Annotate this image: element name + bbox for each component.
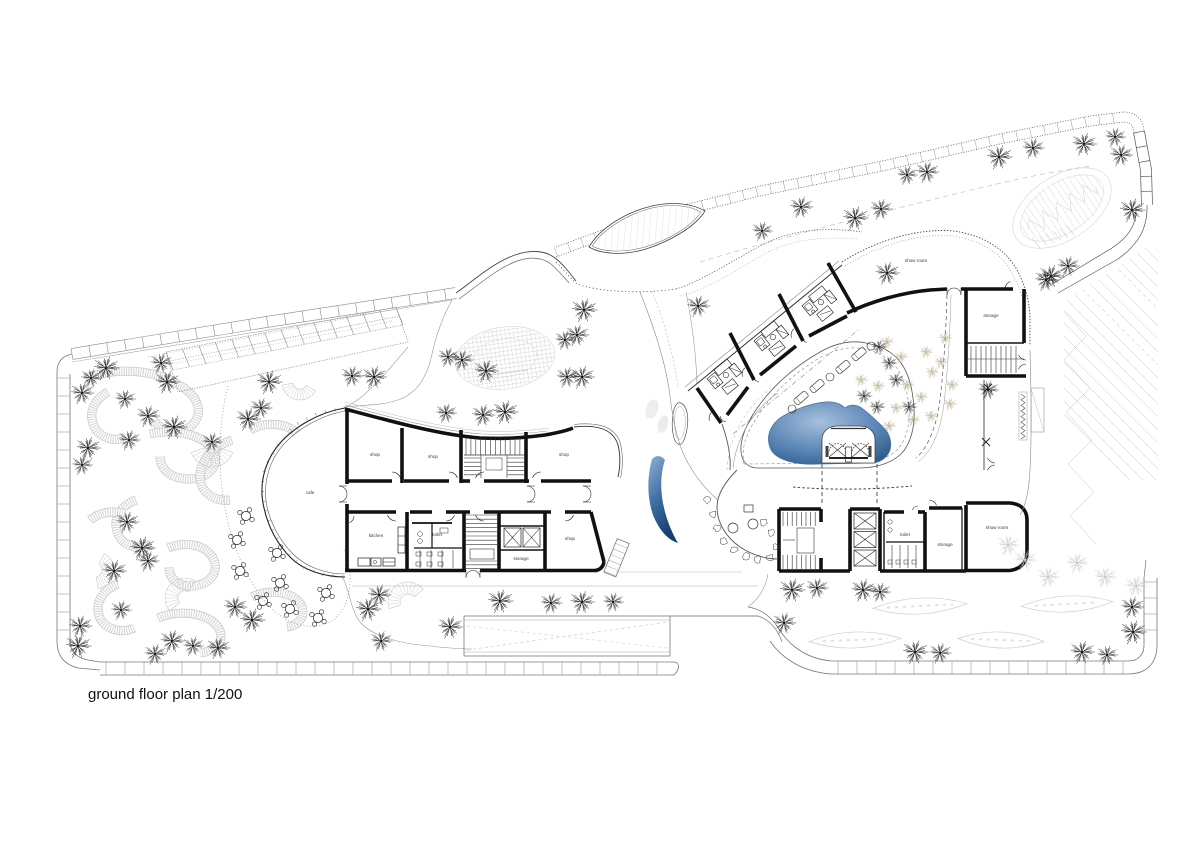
svg-text:cafe: cafe: [306, 490, 315, 495]
svg-text:kitchen: kitchen: [369, 533, 384, 538]
svg-text:show room: show room: [986, 525, 1009, 530]
svg-text:storage: storage: [937, 542, 953, 547]
svg-text:toilet: toilet: [900, 532, 910, 537]
svg-text:ground floor plan 1/200: ground floor plan 1/200: [88, 686, 242, 703]
svg-text:shop: shop: [565, 536, 575, 541]
svg-text:shop: shop: [559, 452, 569, 457]
svg-text:shop: shop: [370, 452, 380, 457]
svg-text:storage: storage: [513, 556, 529, 561]
svg-text:storage: storage: [983, 313, 999, 318]
svg-text:show room: show room: [905, 258, 928, 263]
svg-text:shop: shop: [428, 454, 438, 459]
svg-text:toilet: toilet: [432, 532, 442, 537]
